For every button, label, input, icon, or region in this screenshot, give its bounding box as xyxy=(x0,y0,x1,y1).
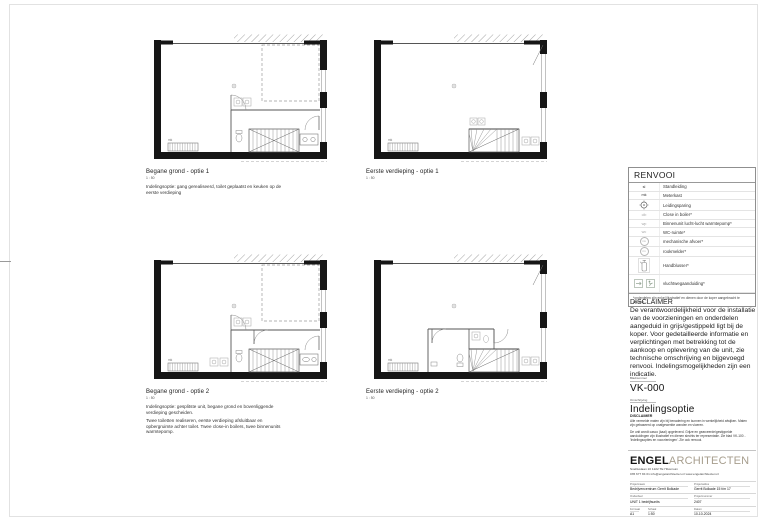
close-in-boiler-symbol: cib xyxy=(642,213,647,217)
legend-title: RENVOOI xyxy=(629,168,755,183)
legend-row: cib Close in boiler* xyxy=(629,211,755,220)
fine-print-p2: De unit wordt casco (kaal) opgeleverd. G… xyxy=(630,430,752,442)
plan-note: Indelingsoptie: gang gerealiseerd, toile… xyxy=(146,184,282,195)
field-label: Onderdeel xyxy=(630,495,688,499)
floorplan-eerste-verdieping-optie-1: mk Eerste verdieping - optie 1 1 : 50 xyxy=(366,34,566,180)
rookmelder-symbol: rm xyxy=(640,247,649,256)
sheet-number: VK-000 xyxy=(630,383,756,394)
plan-scale: 1 : 50 xyxy=(366,396,566,400)
meterkast-label: mk xyxy=(168,138,173,142)
legend-row: wp Binnenunit lucht-lucht warmtepomp* xyxy=(629,220,755,229)
titleblock: ENGELARCHITECTEN Snelliuslaan 10 1222 TE… xyxy=(630,455,756,516)
titleblock-separator xyxy=(628,450,756,451)
disclaimer-title: DISCLAIMER xyxy=(630,299,756,306)
field-label: Schaal xyxy=(648,508,655,512)
plan-scale: 1 : 50 xyxy=(146,176,346,180)
legend-row: Handblusser* xyxy=(629,257,755,275)
field-label: Projectadres xyxy=(694,483,750,487)
plan-title: Begane grond - optie 2 xyxy=(146,389,346,395)
plan-note: Indelingsoptie: gesplitste unit, begane … xyxy=(146,404,282,415)
titleblock-table: Projectnaam Bedrijvencentrum Gerrit Bolk… xyxy=(630,481,756,517)
mechanische-afvoer-symbol: mv xyxy=(640,237,649,246)
plan-scale: 1 : 50 xyxy=(366,176,566,180)
plan-title: Eerste verdieping - optie 1 xyxy=(366,169,566,175)
floorplan-drawing-v1: mk xyxy=(366,34,561,164)
meterkast-label: mk xyxy=(388,138,393,142)
legend-row: Leidingsparing xyxy=(629,200,755,211)
standleiding-symbol: sl xyxy=(643,185,646,189)
meterkast-label: mk xyxy=(168,358,173,362)
floorplan-begane-grond-optie-1: mk Begane grond - optie 1 1 : 50 Indelin… xyxy=(146,34,346,195)
field-label: Projectnummer xyxy=(694,495,750,499)
legend-renvooi: RENVOOI sl Standleiding mk Meterkast Lei… xyxy=(628,167,756,307)
field-value: 1:50 xyxy=(648,512,656,516)
field-label: Formaat xyxy=(630,508,639,512)
field-value: Bedrijvencentrum Gerrit Bolkade xyxy=(630,487,694,491)
handblusser-icon xyxy=(638,258,650,273)
field-value: UNIT 1 bedrijfsunits xyxy=(630,500,694,504)
field-label: Datum xyxy=(694,508,750,512)
plan-note-2: Twee toiletten realiseren, eerste verdie… xyxy=(146,418,282,435)
floorplan-eerste-verdieping-optie-2: mk Eerste verdieping - optie 2 1 : 50 xyxy=(366,254,566,400)
legend-row: wc WC-ruimte* xyxy=(629,228,755,237)
fold-mark xyxy=(0,261,11,262)
floorplan-drawing-v2: mk xyxy=(366,254,561,384)
leidingsparing-icon xyxy=(639,200,649,210)
plan-title: Begane grond - optie 1 xyxy=(146,169,346,175)
floorplan-drawing-bg1: mk xyxy=(146,34,341,164)
meterkast-symbol: mk xyxy=(641,193,646,197)
field-value: A1 xyxy=(630,512,640,516)
firm-logo: ENGELARCHITECTEN xyxy=(630,455,756,467)
sheet-info: Bladnummer VK-000 Omschrijving Indelings… xyxy=(630,376,756,419)
legend-row: mv mechanische afvoer* xyxy=(629,237,755,247)
plan-scale: 1 : 50 xyxy=(146,396,346,400)
legend-row: rm rookmelder* xyxy=(629,247,755,257)
legend-row: mk Meterkast xyxy=(629,192,755,201)
disclaimer-body: De verantwoordelijkheid voor de installa… xyxy=(630,307,756,379)
fine-print-block: DISCLAIMER Alle vermelde maten zijn bij … xyxy=(630,414,752,445)
fine-print-p1: Alle vermelde maten zijn bij benadering … xyxy=(630,419,752,427)
field-value: 10-10-2024 xyxy=(694,512,756,516)
field-label: Projectnaam xyxy=(630,483,688,487)
field-value: 2407 xyxy=(694,500,756,504)
fine-print-title: DISCLAIMER xyxy=(630,414,752,418)
sheet-name-label: Omschrijving xyxy=(630,398,656,404)
wc-ruimte-symbol: wc xyxy=(642,230,647,234)
floorplan-drawing-bg2: mk xyxy=(146,254,341,384)
floorplan-begane-grond-optie-2: mk Begane grond - optie 2 1 : 50 Indelin… xyxy=(146,254,346,435)
plan-title: Eerste verdieping - optie 2 xyxy=(366,389,566,395)
disclaimer-block: DISCLAIMER De verantwoordelijkheid voor … xyxy=(630,299,756,379)
field-value: Gerrit Bolkade 15 t/m 17 xyxy=(694,487,756,491)
vluchtweg-icon xyxy=(634,279,655,288)
firm-logo-light: ARCHITECTEN xyxy=(669,455,749,467)
firm-contact: 035 677 84 01 info@engelarchitecten.nl w… xyxy=(630,473,756,477)
firm-logo-bold: ENGEL xyxy=(630,455,669,467)
legend-row: vluchtwegaanduiding* xyxy=(629,275,755,293)
warmtepomp-symbol: wp xyxy=(642,222,647,226)
legend-row: sl Standleiding xyxy=(629,183,755,192)
sheet-number-label: Bladnummer xyxy=(630,376,656,382)
meterkast-label: mk xyxy=(388,358,393,362)
